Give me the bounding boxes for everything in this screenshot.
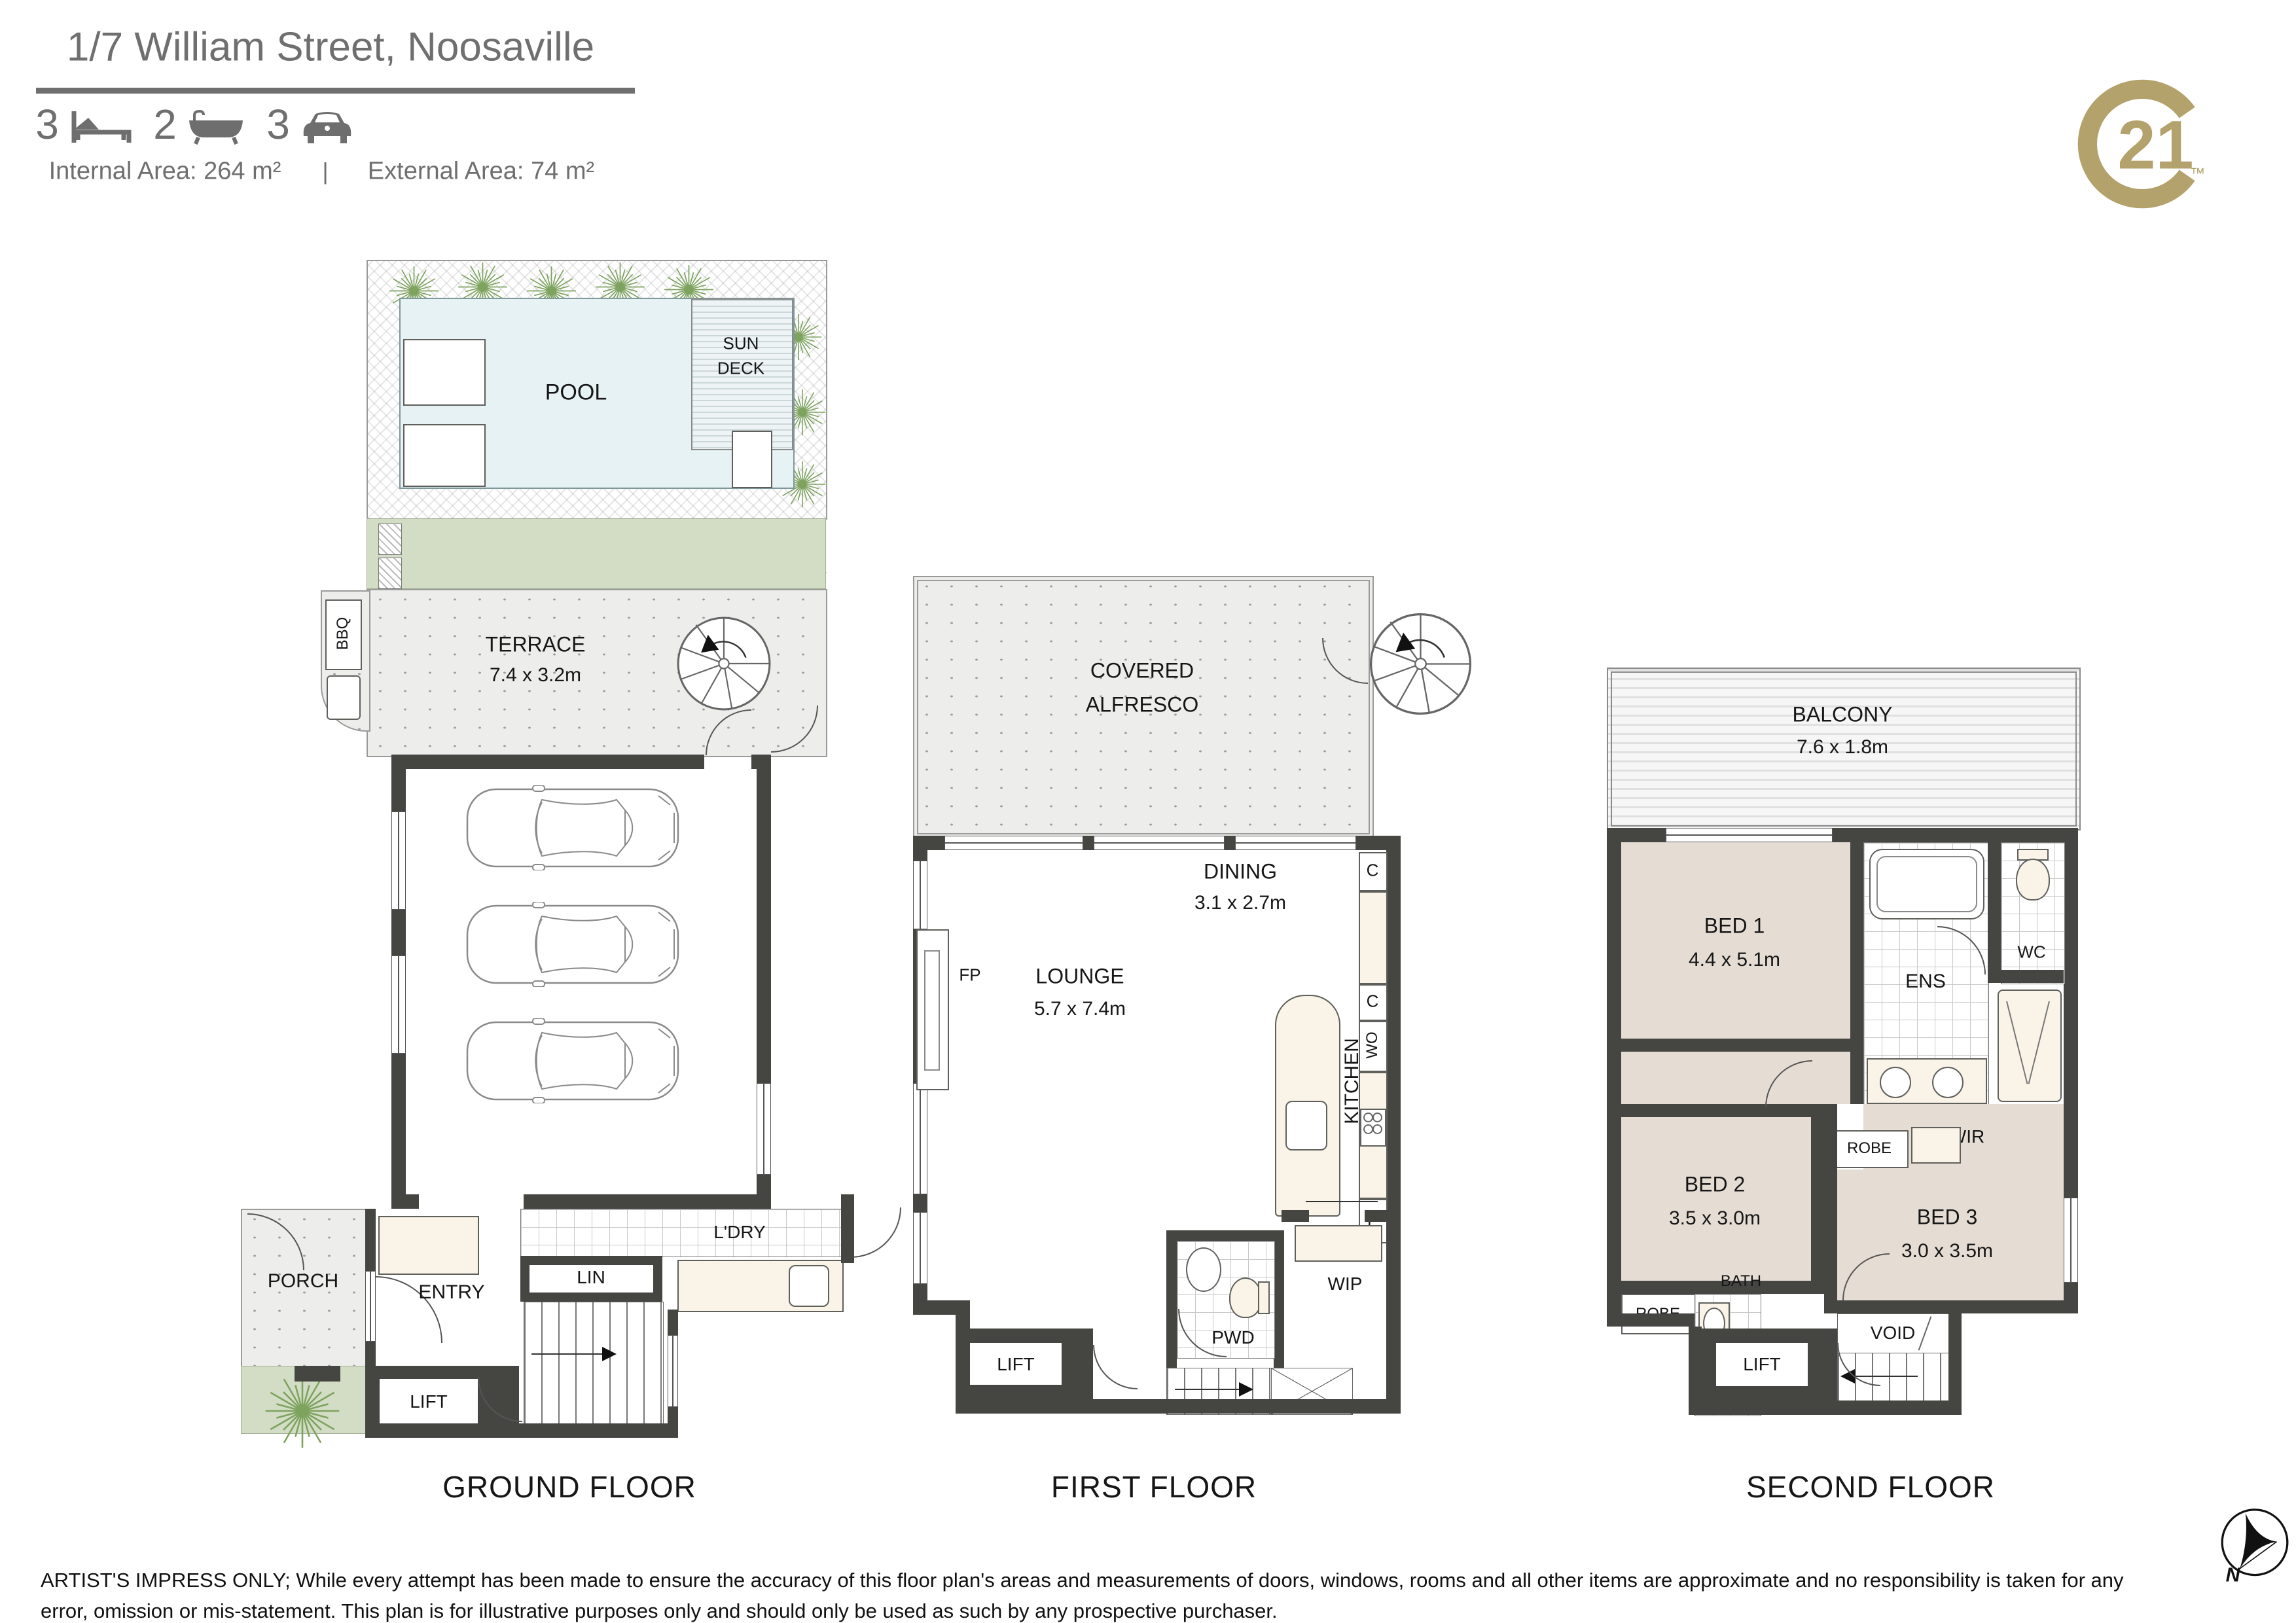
wall bbox=[1689, 1327, 1702, 1400]
wall bbox=[1988, 970, 2064, 983]
wall bbox=[956, 1399, 1388, 1414]
disclaimer: ARTIST'S IMPRESS ONLY; While every attem… bbox=[41, 1565, 2174, 1623]
lift-label: LIFT bbox=[997, 1354, 1035, 1375]
bath-icon bbox=[187, 110, 245, 145]
wall bbox=[365, 1209, 376, 1271]
bed2-label: BED 2 bbox=[1685, 1173, 1745, 1197]
title-underline bbox=[36, 88, 635, 94]
laundry-sink bbox=[789, 1265, 829, 1307]
slider-mark bbox=[1306, 1201, 1378, 1202]
window bbox=[391, 811, 406, 910]
sun-deck-label: SUN bbox=[723, 334, 759, 354]
balcony-dim: 7.6 x 1.8m bbox=[1797, 736, 1888, 758]
wall bbox=[1166, 1230, 1284, 1241]
burner bbox=[1372, 1113, 1382, 1122]
lift-label: LIFT bbox=[1743, 1354, 1781, 1375]
wall bbox=[1811, 1104, 1824, 1281]
window bbox=[668, 1335, 678, 1407]
garden-bed bbox=[367, 518, 826, 589]
bed2-dim: 3.5 x 3.0m bbox=[1669, 1207, 1761, 1230]
wall bbox=[1282, 1210, 1309, 1222]
laundry bbox=[520, 1209, 842, 1257]
lounge-dim: 5.7 x 7.4m bbox=[1034, 998, 1126, 1020]
pantry-cupboard bbox=[1359, 891, 1388, 984]
garden-pad bbox=[378, 558, 402, 589]
wall bbox=[1356, 836, 1401, 850]
second-floor-title: SECOND FLOOR bbox=[1746, 1469, 1995, 1505]
pantry-shelf bbox=[1295, 1225, 1382, 1262]
bed3-dim: 3.0 x 3.5m bbox=[1901, 1240, 1993, 1262]
window bbox=[391, 955, 406, 1054]
window bbox=[913, 1083, 927, 1194]
compass: N bbox=[2215, 1502, 2294, 1587]
plant-icon bbox=[260, 1369, 344, 1453]
wall bbox=[520, 1256, 662, 1265]
bbq-label: BBQ bbox=[334, 617, 352, 651]
spiral-stair bbox=[1367, 610, 1475, 718]
wall bbox=[1850, 842, 1863, 1104]
car-count: 3 bbox=[266, 100, 290, 149]
sun-lounger bbox=[403, 424, 486, 487]
pool-label: POOL bbox=[545, 380, 607, 406]
wall bbox=[1988, 842, 2001, 983]
robe-bed3-label: ROBE bbox=[1847, 1139, 1892, 1158]
wall bbox=[1386, 850, 1401, 1210]
dining-label: DINING bbox=[1204, 860, 1277, 884]
terrace-dim: 7.4 x 3.2m bbox=[490, 664, 581, 687]
page-title: 1/7 William Street, Noosaville bbox=[67, 24, 594, 71]
lounge-label: LOUNGE bbox=[1035, 965, 1124, 989]
vanity-basin bbox=[1932, 1067, 1964, 1098]
wall bbox=[956, 1300, 970, 1343]
balcony-label: BALCONY bbox=[1793, 703, 1893, 727]
wc-label: WC bbox=[2017, 942, 2045, 963]
window bbox=[944, 836, 1083, 850]
bed1-dim: 4.4 x 5.1m bbox=[1689, 949, 1780, 971]
powder-toilet bbox=[1229, 1277, 1262, 1318]
porch-label: PORCH bbox=[268, 1270, 338, 1293]
window bbox=[2064, 1198, 2078, 1283]
cupboard-label: C bbox=[1367, 861, 1379, 881]
floorplan-page: 1/7 William Street, Noosaville 3 2 3 Int… bbox=[0, 0, 2296, 1623]
wall bbox=[1689, 1400, 1962, 1415]
powder-basin bbox=[1186, 1247, 1221, 1292]
compass-north-label: N bbox=[2226, 1564, 2241, 1586]
wall-oven-label: WO bbox=[1363, 1031, 1382, 1058]
alfresco-label: ALFRESCO bbox=[1086, 693, 1198, 717]
pool-step bbox=[732, 431, 772, 488]
terrace-label: TERRACE bbox=[486, 633, 586, 657]
entry-mat bbox=[378, 1216, 479, 1275]
bath-label: BATH bbox=[1721, 1272, 1761, 1291]
burner bbox=[1372, 1124, 1382, 1134]
spiral-stair bbox=[674, 614, 774, 713]
bed1-label: BED 1 bbox=[1704, 914, 1765, 938]
garden-pad bbox=[378, 524, 402, 555]
sun-lounger bbox=[403, 339, 486, 406]
sliding-door bbox=[1235, 836, 1356, 850]
staircase bbox=[524, 1302, 664, 1425]
wall bbox=[1365, 1210, 1401, 1222]
fireplace-inner bbox=[924, 950, 940, 1071]
bed-icon bbox=[69, 110, 134, 144]
door-arc bbox=[851, 1207, 901, 1258]
parked-car bbox=[465, 902, 681, 987]
logo-number: 21 bbox=[2117, 107, 2193, 184]
stair-arrow-head bbox=[1239, 1382, 1253, 1397]
wc-toilet bbox=[2016, 859, 2050, 901]
stair-arrow bbox=[531, 1353, 603, 1355]
alfresco-label: COVERED bbox=[1090, 659, 1194, 683]
lift-label: LIFT bbox=[410, 1391, 448, 1412]
wall bbox=[1824, 1104, 1837, 1313]
dining-dim: 3.1 x 2.7m bbox=[1194, 892, 1286, 914]
wall bbox=[751, 755, 771, 769]
hallway bbox=[1621, 1052, 1850, 1104]
burner bbox=[1363, 1113, 1373, 1122]
bed1-room bbox=[1621, 842, 1850, 1039]
wall bbox=[913, 836, 944, 850]
parked-car bbox=[465, 785, 681, 870]
powder-cistern bbox=[1258, 1281, 1270, 1314]
linen-label: LIN bbox=[577, 1267, 605, 1288]
wall bbox=[1607, 842, 1621, 1313]
car-icon bbox=[300, 110, 355, 145]
bed-count: 3 bbox=[35, 100, 59, 149]
fireplace-label: FP bbox=[959, 965, 980, 986]
wall bbox=[365, 1423, 678, 1438]
wall bbox=[391, 1194, 419, 1209]
logo-trademark: ™ bbox=[2190, 164, 2205, 181]
stair-arrow-head bbox=[602, 1347, 617, 1361]
window bbox=[913, 861, 927, 929]
wall bbox=[520, 1293, 662, 1302]
sliding-door bbox=[1094, 836, 1225, 850]
bed3-label: BED 3 bbox=[1917, 1205, 1977, 1230]
wall bbox=[841, 1194, 854, 1263]
wall bbox=[1948, 1313, 1962, 1400]
internal-area: Internal Area: 264 m² bbox=[49, 158, 281, 186]
parked-car bbox=[465, 1018, 681, 1103]
wall bbox=[1225, 836, 1235, 850]
cooktop bbox=[1360, 1109, 1386, 1147]
door-arc bbox=[1093, 1345, 1138, 1389]
window bbox=[757, 1083, 771, 1175]
bathtub-inner bbox=[1876, 856, 1977, 912]
void-label: VOID bbox=[1871, 1323, 1915, 1344]
sun-deck-label: DECK bbox=[717, 359, 764, 379]
island-sink bbox=[1285, 1101, 1327, 1150]
bath-count: 2 bbox=[153, 100, 177, 149]
area-separator: | bbox=[322, 158, 328, 185]
entry-label: ENTRY bbox=[418, 1281, 484, 1304]
robe-shelf bbox=[1911, 1127, 1961, 1164]
cupboard-label: C bbox=[1367, 991, 1379, 1012]
wall bbox=[524, 1194, 771, 1209]
wall bbox=[1386, 1210, 1401, 1414]
ground-floor-title: GROUND FLOOR bbox=[442, 1469, 696, 1505]
stair-arrow bbox=[1175, 1389, 1240, 1390]
bed2-room bbox=[1621, 1117, 1811, 1281]
wall bbox=[391, 755, 704, 769]
burner bbox=[1363, 1124, 1373, 1134]
laundry-label: L'DRY bbox=[713, 1222, 766, 1243]
wall bbox=[1083, 836, 1094, 850]
wall bbox=[1166, 1230, 1177, 1368]
wall bbox=[295, 1366, 340, 1382]
wall bbox=[1824, 1300, 2078, 1313]
entry-door-leaf bbox=[365, 1271, 376, 1342]
sliding-door bbox=[1666, 828, 1833, 842]
wall bbox=[1274, 1230, 1284, 1368]
external-area: External Area: 74 m² bbox=[368, 158, 594, 186]
vanity-basin bbox=[1880, 1067, 1911, 1098]
bbq-cabinet bbox=[327, 675, 361, 720]
window bbox=[913, 1212, 927, 1284]
bathtub bbox=[1869, 849, 1984, 919]
wall bbox=[1607, 1313, 1702, 1327]
pantry-label: WIP bbox=[1328, 1274, 1363, 1294]
wall bbox=[1621, 1039, 1850, 1052]
first-floor-title: FIRST FLOOR bbox=[1051, 1469, 1257, 1505]
century21-logo: 21 ™ bbox=[2067, 69, 2217, 219]
